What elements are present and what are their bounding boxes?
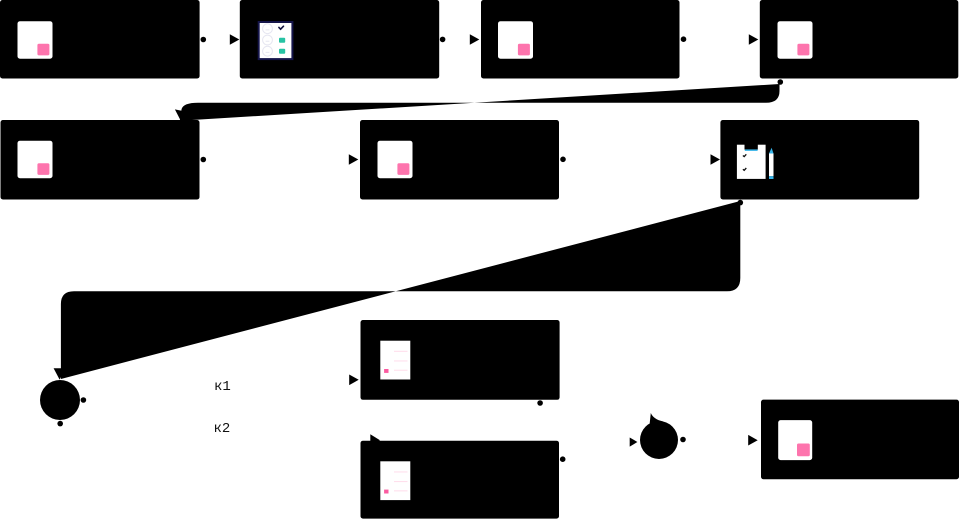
svg-text:к2: к2 [214, 421, 231, 437]
svg-text:к1: к1 [214, 379, 231, 395]
